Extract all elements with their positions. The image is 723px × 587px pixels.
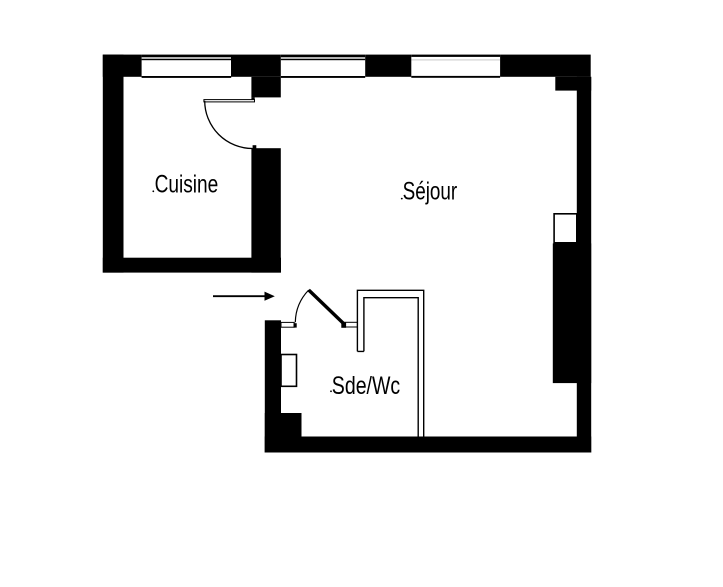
svg-text:Sde/Wc: Sde/Wc [332, 372, 400, 400]
svg-text:Séjour: Séjour [403, 178, 458, 206]
svg-text:Cuisine: Cuisine [155, 170, 219, 198]
